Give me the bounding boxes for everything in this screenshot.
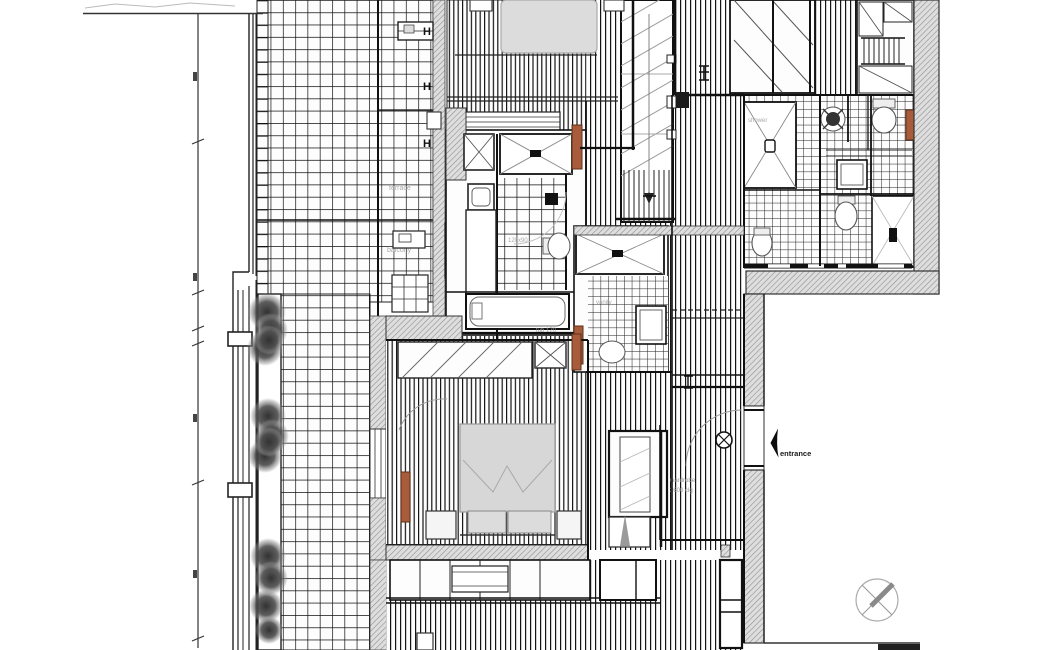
svg-text:H: H [423,26,431,38]
svg-text:H: H [423,81,431,93]
svg-text:vanity: vanity [596,300,612,306]
svg-text:2600 clg: 2600 clg [670,488,693,494]
svg-text:wardrobe: wardrobe [669,478,696,484]
svg-text:H: H [423,138,431,150]
svg-text:tub 170: tub 170 [536,328,557,334]
svg-text:shower: shower [748,118,767,124]
svg-text:terrace: terrace [389,185,411,192]
svg-text:entrance: entrance [780,449,811,458]
